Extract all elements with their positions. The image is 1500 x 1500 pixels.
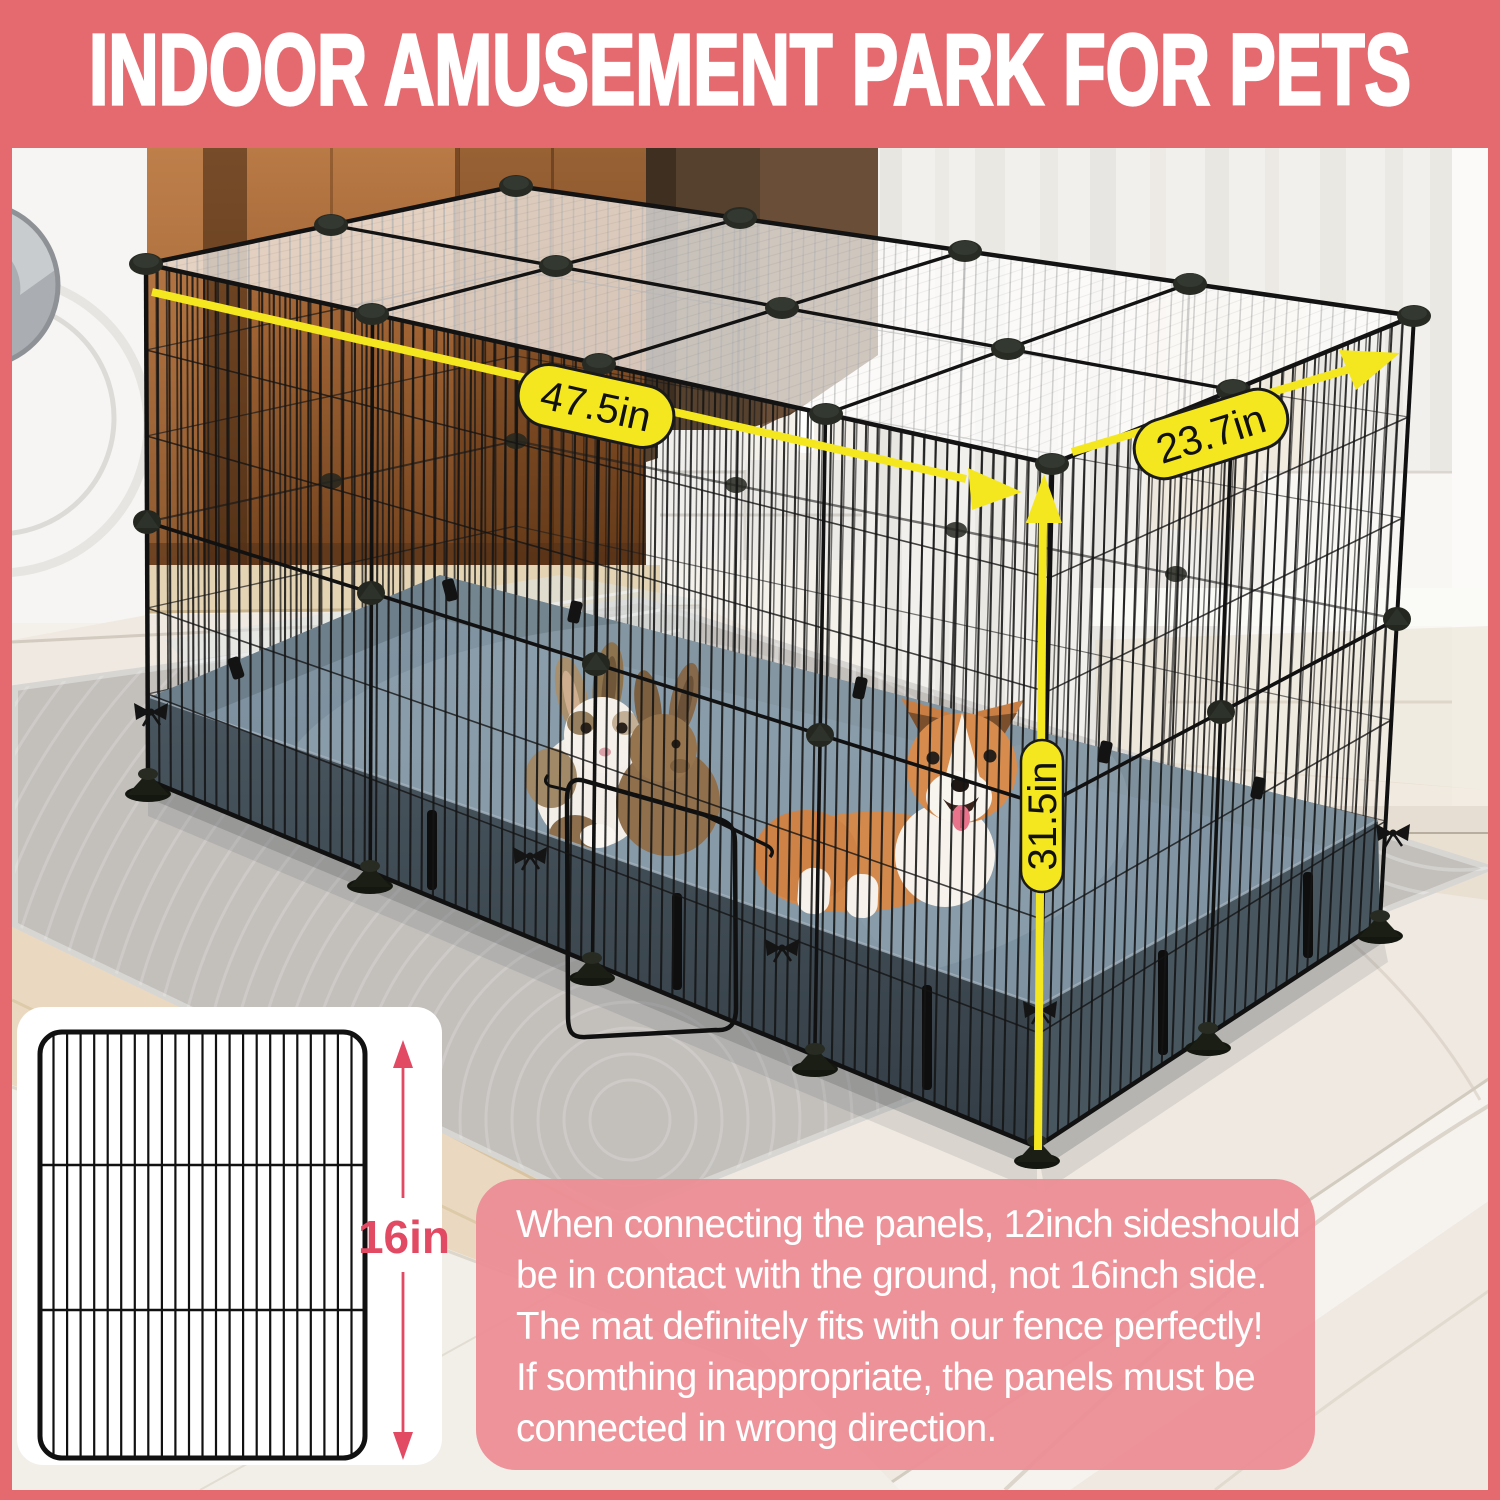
- svg-text:31.5in: 31.5in: [1021, 762, 1065, 871]
- svg-text:16in: 16in: [358, 1211, 450, 1263]
- svg-text:connected in wrong direction.: connected in wrong direction.: [516, 1407, 997, 1450]
- svg-text:When connecting the panels, 12: When connecting the panels, 12inch sides…: [516, 1203, 1300, 1246]
- svg-text:If somthing inappropriate, the: If somthing inappropriate, the panels mu…: [516, 1356, 1255, 1399]
- svg-text:INDOOR AMUSEMENT PARK FOR PETS: INDOOR AMUSEMENT PARK FOR PETS: [89, 14, 1411, 126]
- svg-text:The mat definitely fits with o: The mat definitely fits with our fence p…: [516, 1305, 1263, 1348]
- svg-text:be in contact with the ground,: be in contact with the ground, not 16inc…: [516, 1254, 1266, 1297]
